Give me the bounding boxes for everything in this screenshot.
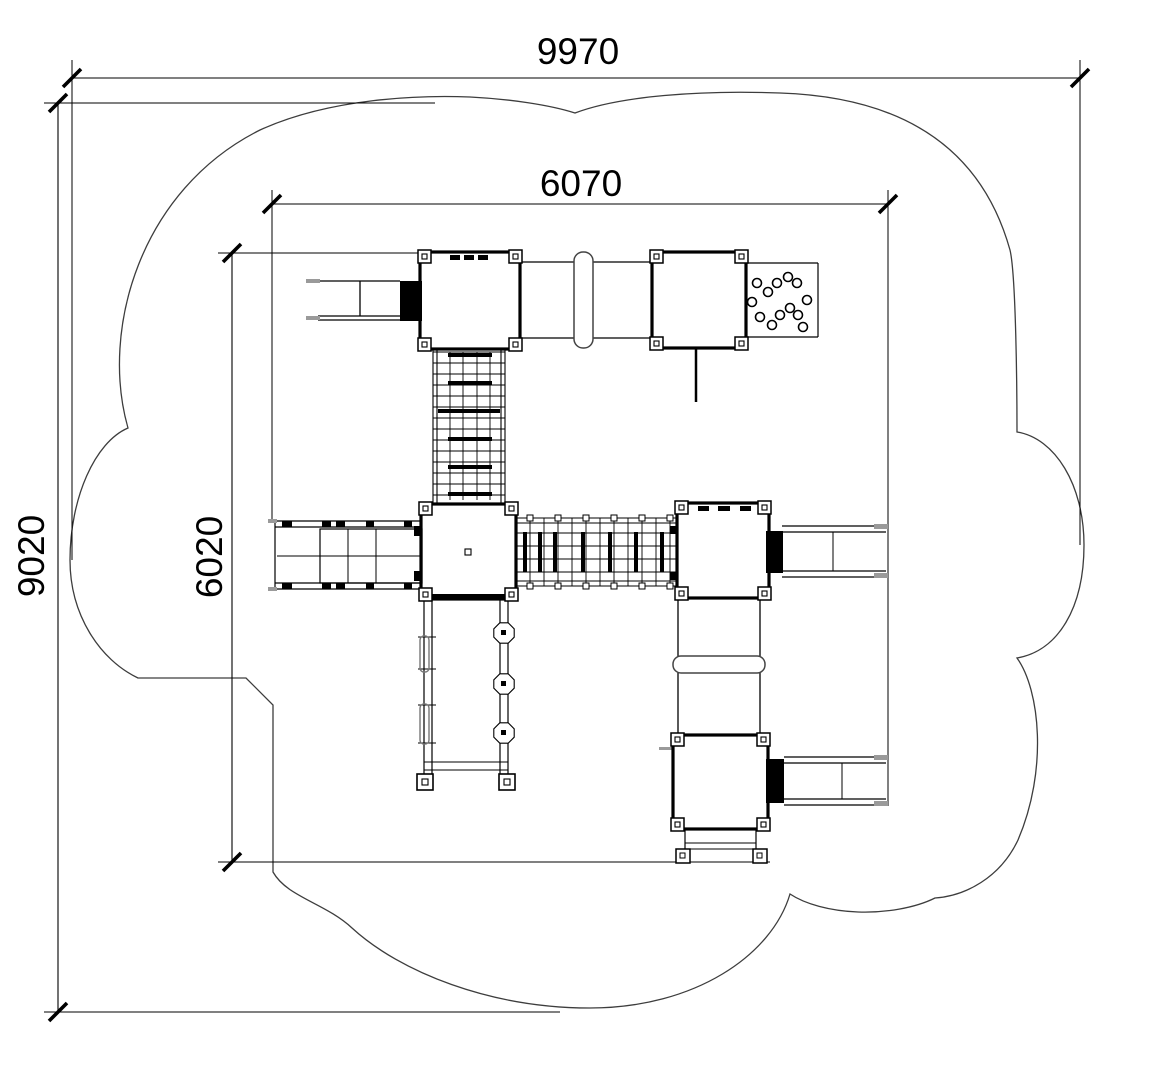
dim-label-overall-width: 9970 <box>537 31 619 72</box>
slide-bottom-right <box>659 747 888 806</box>
dim-label-equipment-width: 6070 <box>540 163 622 204</box>
climbing-holds-ramp <box>746 263 818 337</box>
tower-center <box>419 502 518 601</box>
tower-top-left <box>418 250 522 351</box>
net-bridge-vertical <box>433 349 505 504</box>
tower-top-right <box>650 250 748 350</box>
plan-page: 9970 6070 9020 6020 <box>0 0 1166 1072</box>
slide-mid-right <box>766 524 888 578</box>
tower-bottom-right <box>671 733 770 831</box>
climber-below-center <box>417 599 515 790</box>
net-bridge-horizontal <box>516 515 677 589</box>
dim-label-overall-height: 9020 <box>11 515 52 597</box>
tower-mid-right <box>675 501 771 600</box>
dim-label-equipment-height: 6020 <box>189 516 230 598</box>
playground-plan-drawing: 9970 6070 9020 6020 <box>0 0 1166 1072</box>
ramp-left <box>268 519 422 591</box>
slide-top-left <box>306 279 422 321</box>
steps-bottom <box>676 829 767 863</box>
tube-bridge-top <box>520 252 652 348</box>
tube-bridge-vertical <box>673 598 765 735</box>
